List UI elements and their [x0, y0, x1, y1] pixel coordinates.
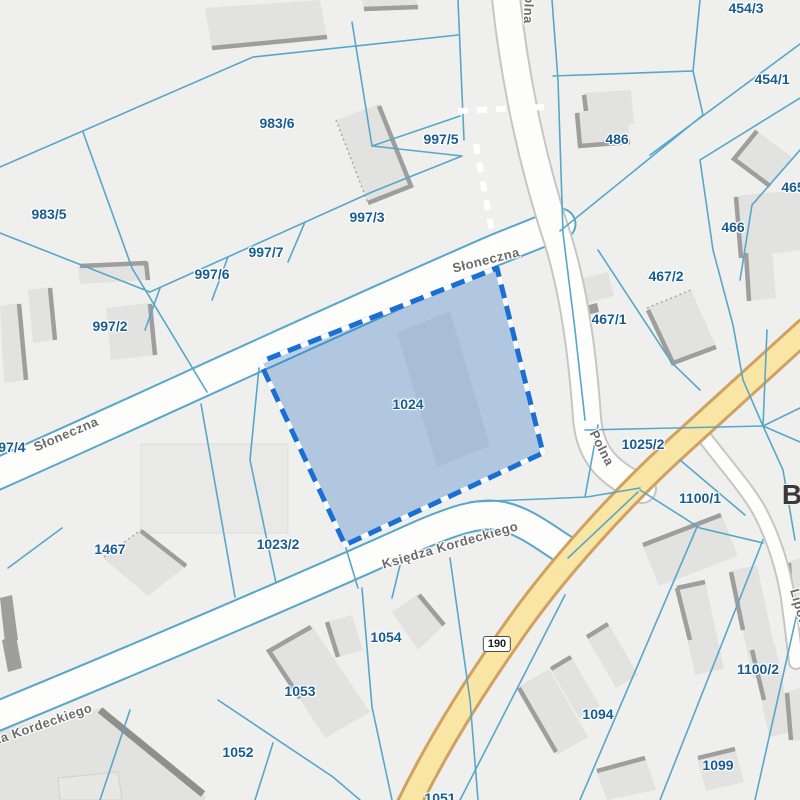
building [676, 581, 724, 675]
building [141, 444, 288, 533]
place-name-label: B [782, 479, 800, 511]
parcel-label: 467/2 [648, 268, 683, 284]
parcel-label: 486 [605, 131, 628, 147]
parcel-label: 1094 [582, 706, 613, 722]
road-number-badge: 190 [483, 636, 511, 652]
parcel-label: 1099 [702, 757, 733, 773]
parcel-label: 1053 [284, 683, 315, 699]
parcel-label: 1052 [222, 744, 253, 760]
parcel-label: 1023/2 [257, 536, 300, 552]
parcel-label: 997/7 [248, 244, 283, 260]
parcel-label: 465 [781, 179, 800, 195]
parcel-label: 997/6 [194, 266, 229, 282]
parcel-label: 1100/2 [737, 661, 779, 677]
parcel-label: 997/3 [349, 209, 384, 225]
street-label: Polna [521, 0, 537, 24]
parcel-label: 454/1 [754, 71, 789, 87]
building [103, 530, 186, 596]
parcel-label: 983/6 [259, 115, 294, 131]
parcel-label: 997/2 [92, 318, 127, 334]
parcel-label: 1024 [392, 396, 423, 412]
parcel-label: 1054 [370, 629, 401, 645]
parcel-label: 454/3 [728, 0, 763, 16]
map-canvas[interactable]: 983/5983/6997/5997/3997/7997/6997/2997/4… [0, 0, 800, 800]
parcel-label: 466 [721, 219, 744, 235]
parcel-label: 983/5 [31, 206, 66, 222]
parcel-label: 997/5 [423, 131, 458, 147]
parcel-label: 1467 [94, 541, 125, 557]
parcel-label: 1025/2 [622, 436, 665, 452]
parcel-label: 1051 [424, 790, 455, 800]
parcel-label: 1100/1 [679, 490, 721, 506]
building [734, 131, 793, 186]
parcel-label: 467/1 [591, 311, 626, 327]
parcel-label: 997/4 [0, 439, 26, 455]
